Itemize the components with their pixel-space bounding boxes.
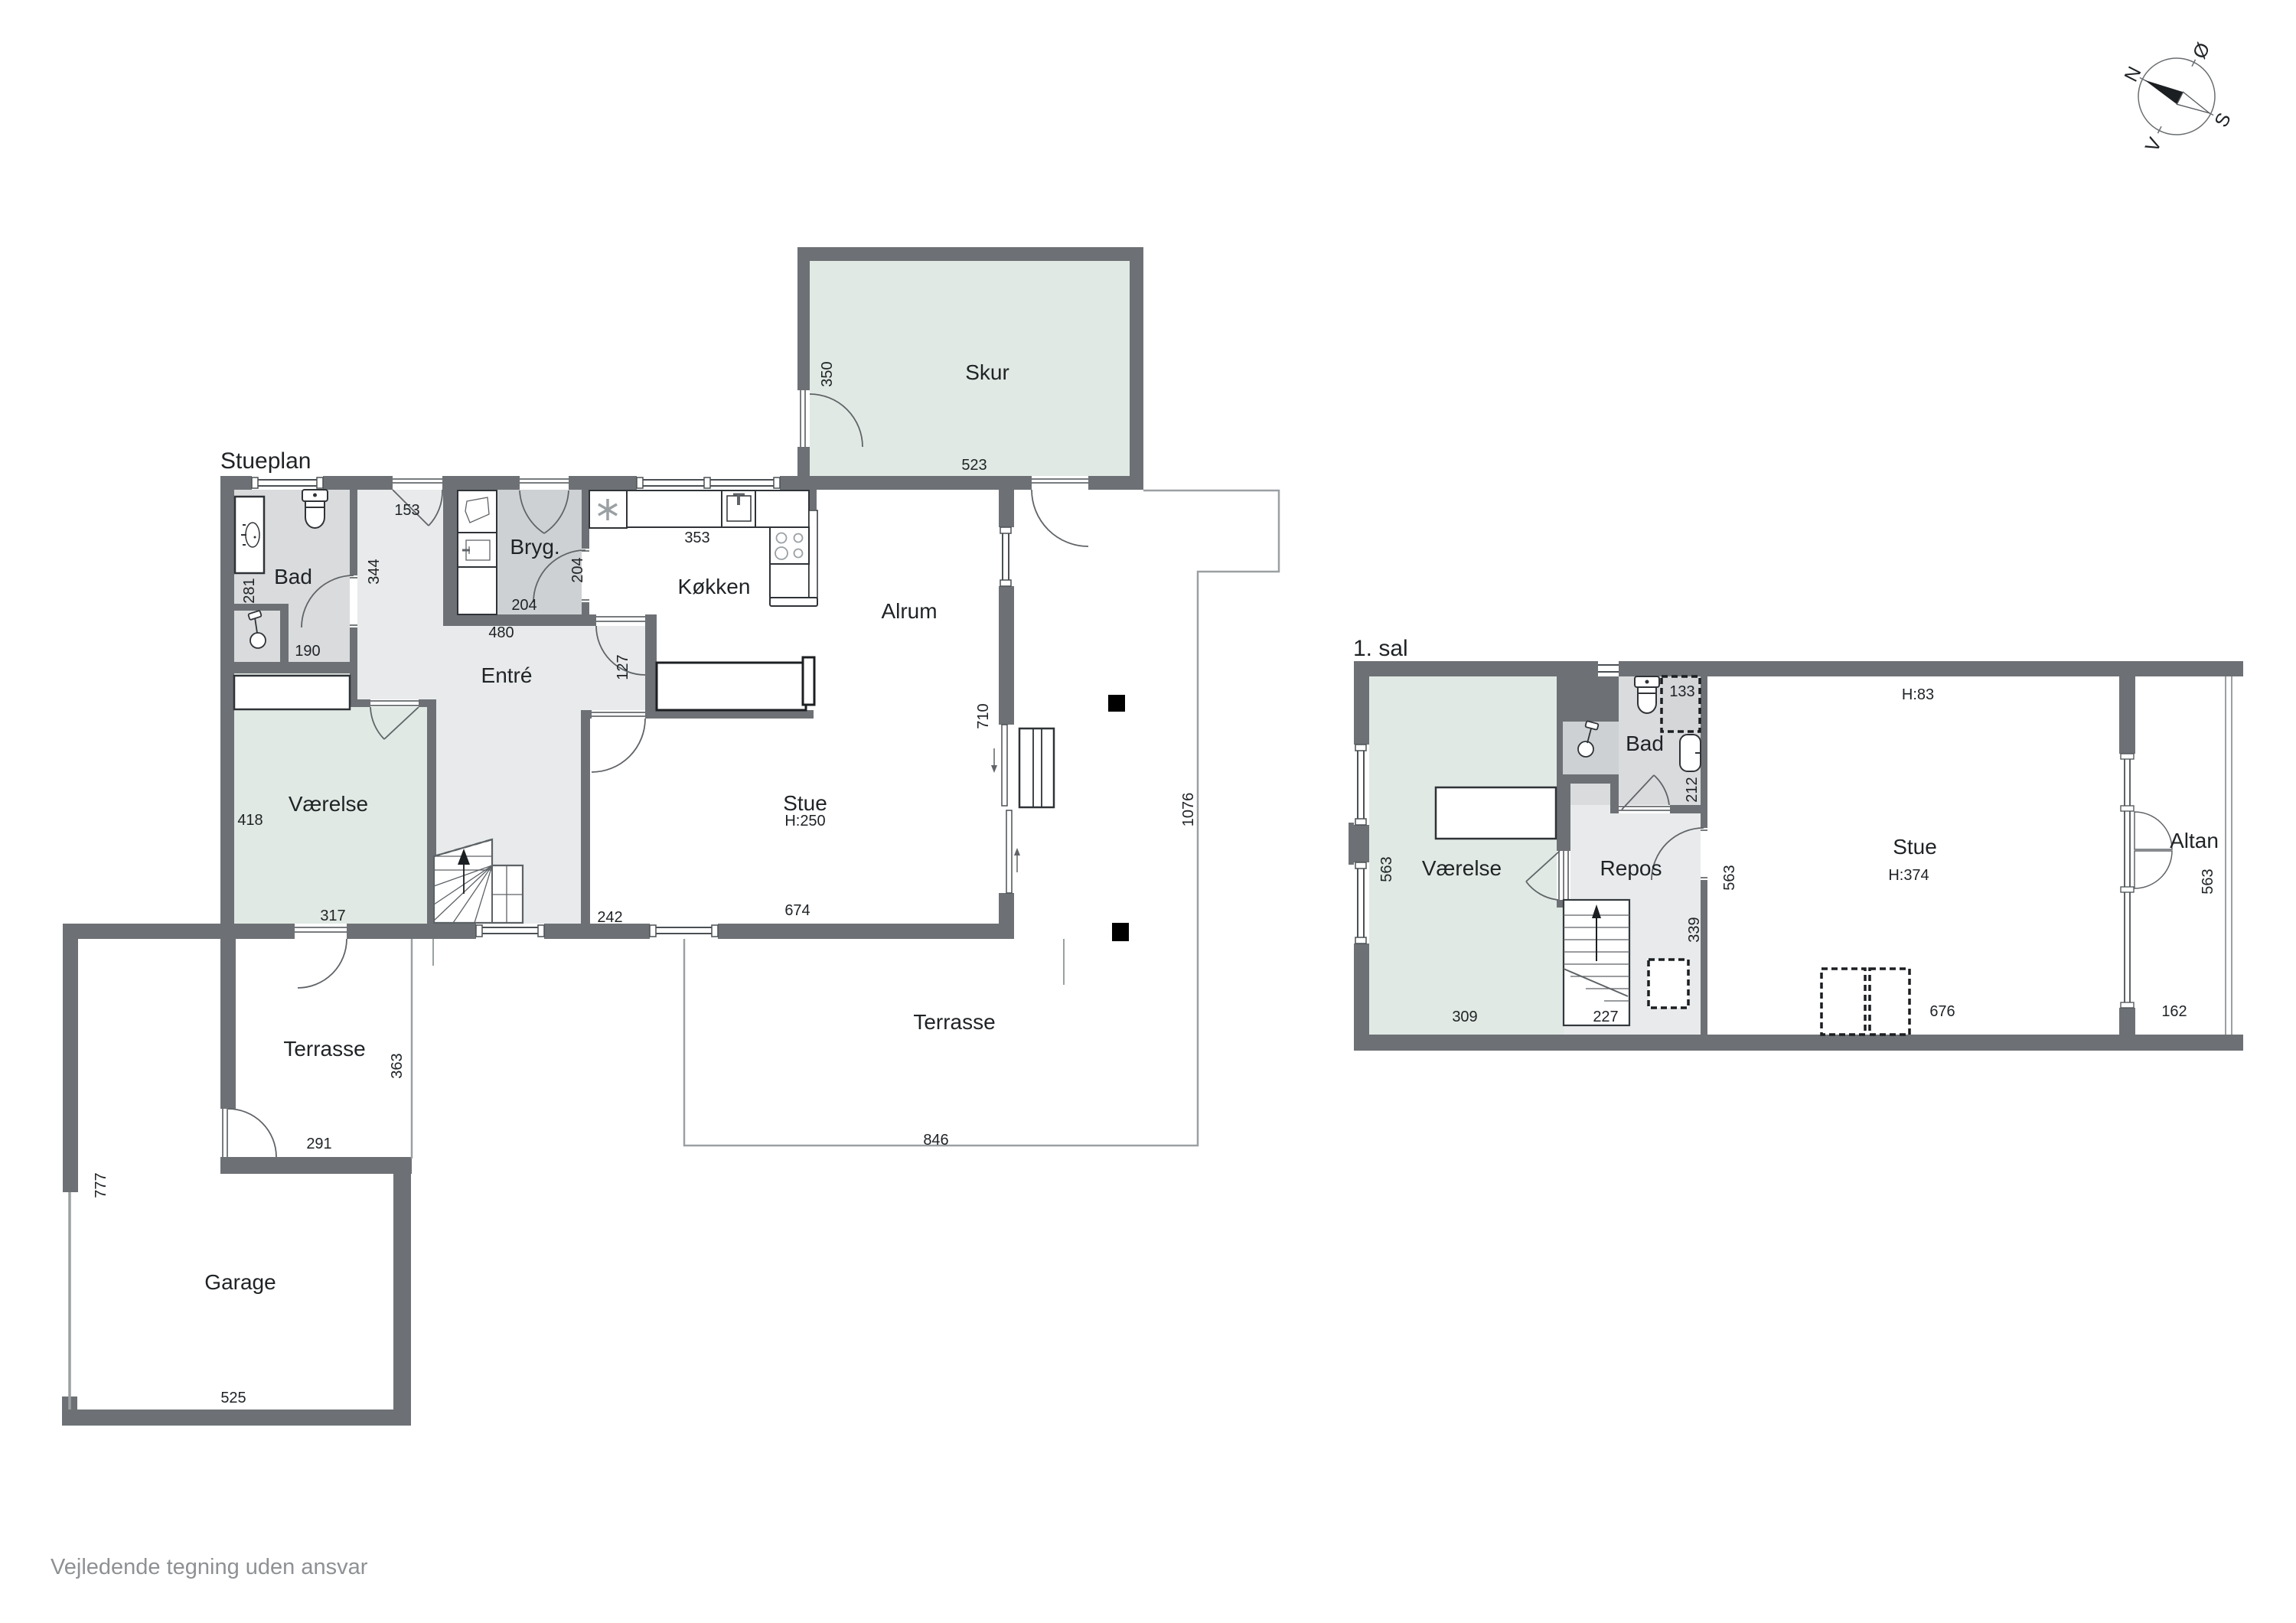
svg-text:353: 353 [684,530,709,546]
svg-text:Køkken: Køkken [678,575,751,598]
svg-text:190: 190 [295,643,320,660]
svg-text:777: 777 [93,1172,109,1198]
svg-text:418: 418 [237,812,263,829]
svg-text:Vejledende tegning uden ansvar: Vejledende tegning uden ansvar [51,1555,368,1579]
svg-text:Stueplan: Stueplan [220,448,311,474]
svg-text:676: 676 [1929,1003,1955,1020]
svg-text:1076: 1076 [1180,793,1197,827]
svg-text:291: 291 [306,1136,331,1152]
svg-text:563: 563 [1721,865,1738,890]
svg-text:317: 317 [320,908,345,924]
svg-text:563: 563 [1378,856,1395,882]
svg-text:127: 127 [615,654,631,680]
svg-text:525: 525 [220,1390,246,1406]
svg-text:153: 153 [394,502,419,519]
svg-text:H:250: H:250 [784,813,825,829]
svg-text:Værelse: Værelse [1422,856,1502,880]
svg-text:674: 674 [784,902,810,919]
svg-text:H:83: H:83 [1902,686,1934,703]
svg-text:480: 480 [488,624,514,641]
svg-text:Stue: Stue [1893,835,1937,859]
svg-text:204: 204 [511,597,536,614]
svg-text:Terrasse: Terrasse [913,1010,995,1034]
svg-text:162: 162 [2161,1003,2187,1020]
svg-text:Entré: Entré [481,663,533,687]
svg-text:Repos: Repos [1600,856,1662,880]
svg-text:Garage: Garage [204,1270,276,1294]
svg-text:339: 339 [1686,917,1703,942]
svg-text:710: 710 [975,703,992,728]
svg-text:Stue: Stue [783,791,827,815]
svg-text:Bad: Bad [274,565,312,588]
svg-text:133: 133 [1669,683,1694,700]
svg-text:Terrasse: Terrasse [283,1037,365,1061]
svg-text:523: 523 [961,457,987,474]
svg-text:Alrum: Alrum [881,599,937,623]
svg-text:Bryg.: Bryg. [510,535,559,559]
svg-text:350: 350 [819,361,836,386]
svg-text:H:374: H:374 [1888,867,1929,884]
svg-text:242: 242 [597,909,622,926]
svg-text:363: 363 [389,1053,406,1078]
svg-text:Værelse: Værelse [289,792,368,816]
svg-text:846: 846 [923,1132,948,1149]
svg-text:204: 204 [569,557,586,582]
svg-text:563: 563 [2200,869,2216,894]
svg-text:Altan: Altan [2170,829,2219,852]
svg-text:227: 227 [1593,1009,1618,1025]
svg-text:Skur: Skur [965,360,1009,384]
svg-text:1. sal: 1. sal [1353,636,1408,661]
svg-text:212: 212 [1684,777,1701,802]
svg-text:Bad: Bad [1626,732,1664,755]
svg-text:281: 281 [241,578,258,603]
svg-text:309: 309 [1452,1009,1477,1025]
svg-text:344: 344 [366,559,383,584]
